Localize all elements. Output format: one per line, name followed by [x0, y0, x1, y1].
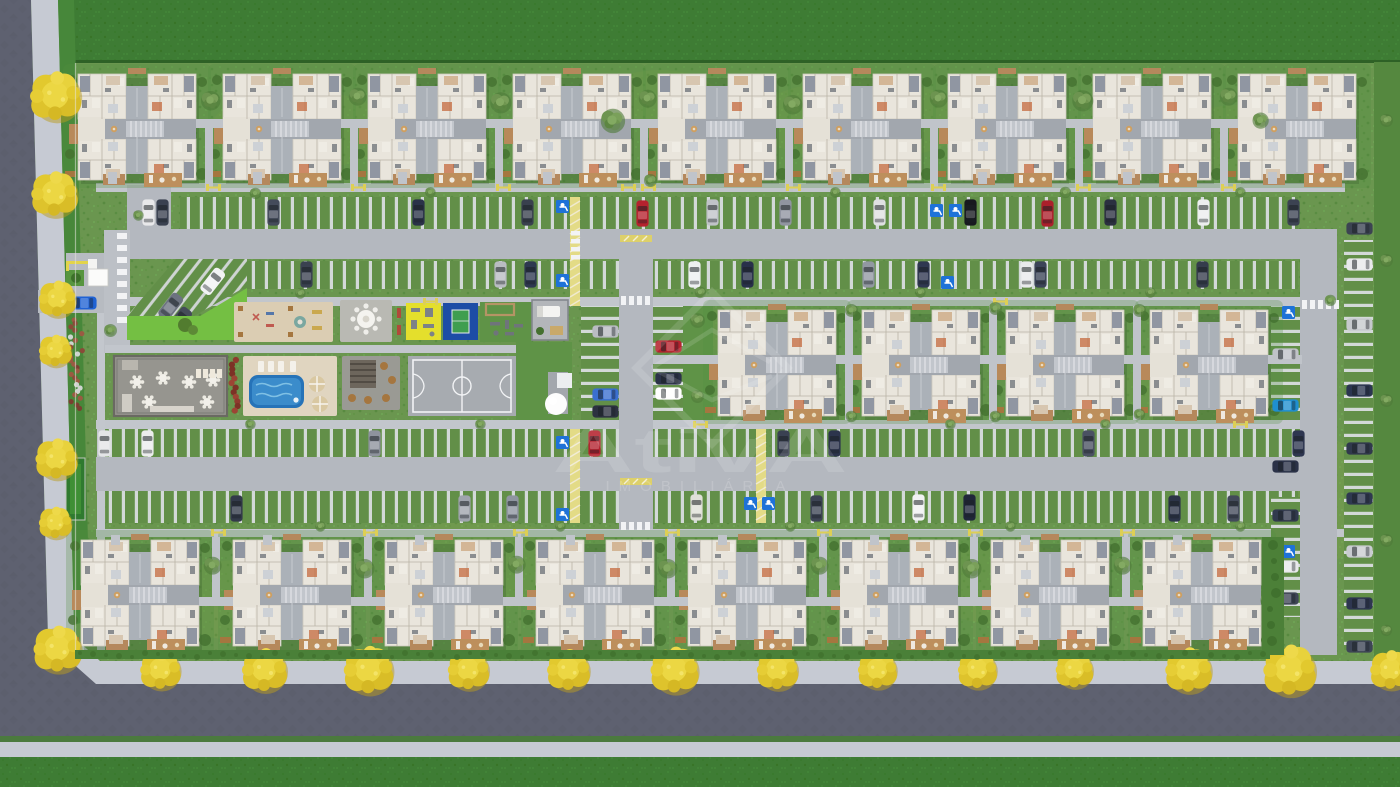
- svg-text:IMOBILIÁRIA: IMOBILIÁRIA: [605, 478, 794, 495]
- svg-text:AtivA: AtivA: [553, 417, 848, 486]
